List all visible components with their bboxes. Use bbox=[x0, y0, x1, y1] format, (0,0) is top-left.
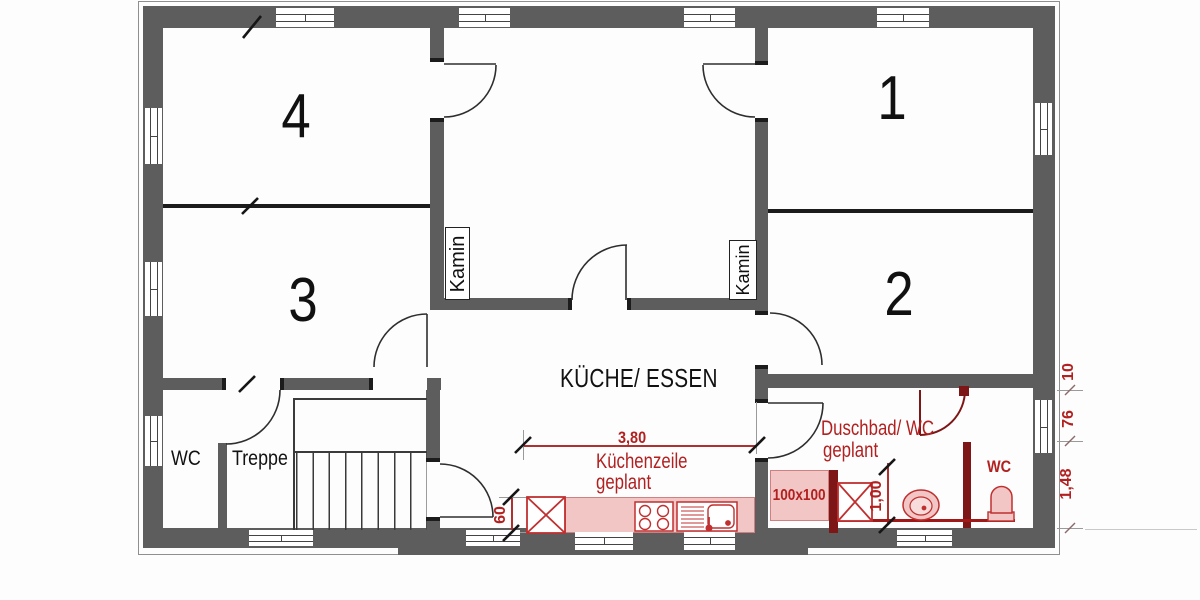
dimension-counter-depth: 60 bbox=[490, 475, 512, 555]
planned-kitchen-label-line2: geplant bbox=[596, 471, 651, 495]
sink-drain bbox=[726, 521, 730, 525]
room-label-3: 3 bbox=[278, 270, 329, 332]
washbasin-drain bbox=[923, 507, 926, 510]
washbasin-bowl bbox=[910, 497, 932, 515]
dimension-chain-148: 1,48 bbox=[1056, 444, 1078, 524]
plan-symbols bbox=[0, 0, 1200, 600]
tick bbox=[749, 437, 765, 453]
door-arc-room2 bbox=[770, 313, 822, 365]
door-arc-bath-entry bbox=[768, 403, 823, 458]
door-arc-middle-room bbox=[572, 245, 627, 300]
kitchen-label: KÜCHE/ ESSEN bbox=[560, 363, 718, 394]
floor-plan: Kamin Kamin 100x100 bbox=[0, 0, 1200, 600]
dimension-kitchen-run: 3,80 bbox=[618, 428, 646, 448]
room-label-1: 1 bbox=[867, 68, 918, 130]
planned-wc-label: WC bbox=[987, 457, 1011, 477]
door-arc-room4 bbox=[444, 65, 496, 117]
sink-faucet-head bbox=[706, 525, 711, 530]
wc-label: WC bbox=[171, 447, 201, 471]
door-arc-room1 bbox=[703, 65, 755, 117]
dimension-shower-width: 1,00 bbox=[866, 456, 888, 536]
toilet-bowl bbox=[991, 487, 1012, 513]
tick bbox=[239, 376, 255, 392]
door-arc-wc bbox=[226, 390, 280, 444]
room-label-4: 4 bbox=[271, 86, 322, 148]
tick bbox=[242, 198, 258, 214]
room-label-2: 2 bbox=[874, 264, 925, 326]
stairs-label: Treppe bbox=[232, 447, 288, 471]
planned-bath-label-line1: Duschbad/ WC bbox=[821, 417, 934, 441]
tick-small bbox=[1065, 523, 1075, 533]
door-arc-stair-hall bbox=[440, 464, 493, 517]
door-arc-room3 bbox=[374, 314, 427, 367]
tick bbox=[515, 437, 531, 453]
tick bbox=[243, 16, 261, 38]
dimension-ticks bbox=[239, 16, 895, 541]
